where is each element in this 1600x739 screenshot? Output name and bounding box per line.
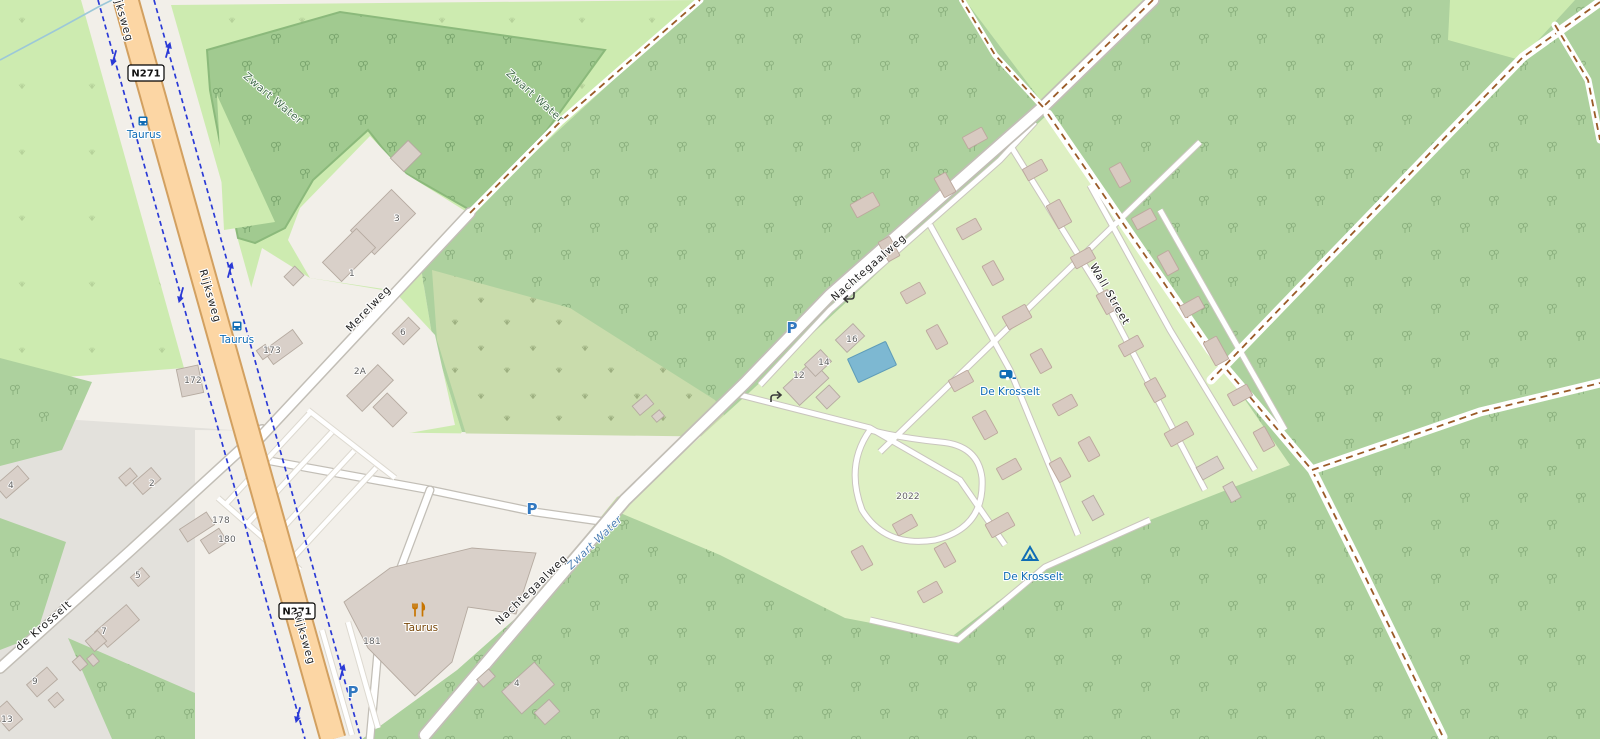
house-number-12: 12 — [793, 371, 805, 381]
bus-stop-icon — [233, 322, 242, 331]
house-number-2: 2 — [149, 479, 155, 489]
bus-stop-label-taurus-top: Taurus — [126, 129, 161, 141]
house-number-180: 180 — [218, 535, 236, 545]
road-ref-badge: N271 — [128, 65, 164, 81]
house-number-13: 13 — [1, 715, 13, 725]
house-number-172: 172 — [184, 376, 202, 386]
house-number-181: 181 — [363, 637, 381, 647]
house-number-2a: 2A — [354, 367, 367, 377]
map-viewport[interactable]: P P P N271 N271 Rijksweg Rijksweg Rijksw… — [0, 0, 1600, 739]
house-number-173: 173 — [263, 346, 281, 356]
map-canvas[interactable]: P P P N271 N271 Rijksweg Rijksweg Rijksw… — [0, 0, 1600, 739]
house-number-14: 14 — [818, 358, 830, 368]
caravan-site-label-de-krosselt: De Krosselt — [980, 386, 1040, 398]
house-number-178: 178 — [212, 516, 230, 526]
parking-icon: P — [348, 683, 359, 701]
house-number-9: 9 — [32, 677, 38, 687]
restaurant-label-taurus: Taurus — [403, 622, 438, 634]
house-number-4-west: 4 — [8, 481, 14, 491]
parking-icon: P — [787, 319, 798, 337]
house-number-16: 16 — [846, 335, 858, 345]
bus-stop-icon — [139, 117, 148, 126]
house-number-1: 1 — [349, 269, 355, 279]
parking-icon: P — [527, 500, 538, 518]
camp-site-label-de-krosselt: De Krosselt — [1003, 571, 1063, 583]
house-number-5: 5 — [135, 571, 141, 581]
house-number-3: 3 — [394, 214, 400, 224]
house-number-4-south: 4 — [514, 679, 520, 689]
house-number-7: 7 — [101, 627, 107, 637]
house-number-6: 6 — [400, 328, 406, 338]
bus-stop-label-taurus-mid: Taurus — [219, 334, 254, 346]
road-ref-text: N271 — [131, 69, 160, 80]
house-number-2022: 2022 — [896, 492, 920, 502]
